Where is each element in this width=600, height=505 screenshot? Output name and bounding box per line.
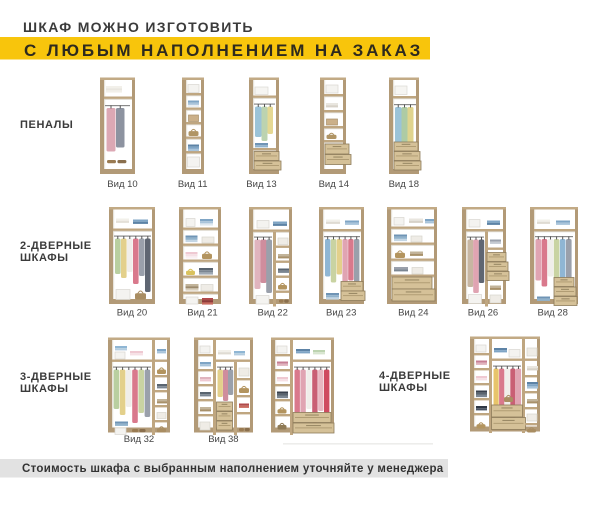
svg-text:Вид 32: Вид 32 [124, 434, 154, 445]
svg-text:Вид 14: Вид 14 [319, 179, 349, 190]
svg-text:ШКАФЫ: ШКАФЫ [20, 252, 69, 264]
svg-text:Вид 18: Вид 18 [389, 179, 419, 190]
svg-text:С ЛЮБЫМ НАПОЛНЕНИЕМ НА ЗАКАЗ: С ЛЮБЫМ НАПОЛНЕНИЕМ НА ЗАКАЗ [24, 41, 423, 60]
svg-text:2-ДВЕРНЫЕ: 2-ДВЕРНЫЕ [20, 240, 92, 252]
svg-text:Вид 24: Вид 24 [398, 308, 428, 319]
svg-text:3-ДВЕРНЫЕ: 3-ДВЕРНЫЕ [20, 371, 92, 383]
svg-text:4-ДВЕРНЫЕ: 4-ДВЕРНЫЕ [379, 370, 451, 382]
svg-text:ШКАФ МОЖНО ИЗГОТОВИТЬ: ШКАФ МОЖНО ИЗГОТОВИТЬ [23, 19, 254, 35]
svg-text:Вид 11: Вид 11 [178, 179, 208, 190]
svg-text:Вид 13: Вид 13 [246, 179, 276, 190]
svg-text:Стоимость шкафа с выбранным на: Стоимость шкафа с выбранным наполнением … [22, 463, 444, 475]
svg-text:ШКАФЫ: ШКАФЫ [379, 382, 428, 394]
svg-text:ПЕНАЛЫ: ПЕНАЛЫ [20, 119, 73, 131]
svg-text:Вид 28: Вид 28 [537, 308, 567, 319]
svg-text:Вид 22: Вид 22 [257, 308, 287, 319]
svg-text:Вид 10: Вид 10 [107, 179, 137, 190]
svg-text:Вид 38: Вид 38 [208, 434, 238, 445]
svg-text:Вид 26: Вид 26 [468, 308, 498, 319]
svg-text:Вид 20: Вид 20 [117, 308, 147, 319]
svg-text:Вид 23: Вид 23 [326, 308, 356, 319]
svg-text:ШКАФЫ: ШКАФЫ [20, 383, 69, 395]
svg-text:Вид 21: Вид 21 [187, 308, 217, 319]
